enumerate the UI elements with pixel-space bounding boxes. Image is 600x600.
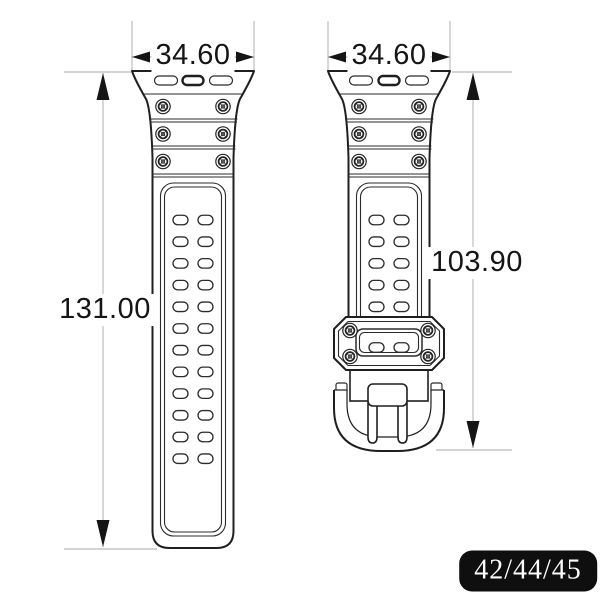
- buckle-prong-leg: [368, 403, 377, 443]
- right-lug-slots: [350, 76, 429, 85]
- arrow-left-icon: [328, 52, 346, 63]
- strap-hole: [394, 280, 409, 290]
- strap-hole: [173, 280, 188, 290]
- dim-width-left: 34.60: [151, 40, 234, 72]
- strap-hole: [173, 389, 188, 399]
- dim-length-right: 103.90: [427, 247, 527, 279]
- strap-hole: [173, 411, 188, 421]
- strap-hole: [394, 259, 409, 269]
- strap-hole: [394, 343, 409, 353]
- lug-slot: [210, 76, 233, 85]
- strap-hole: [198, 367, 213, 377]
- dimension-lines: [64, 21, 512, 549]
- lug-slot-center: [379, 76, 400, 85]
- keeper: [334, 317, 444, 370]
- strap-hole: [369, 343, 384, 353]
- screw-icon: [343, 323, 357, 337]
- strap-hole: [198, 411, 213, 421]
- size-badge: 42/44/45: [459, 551, 597, 592]
- strap-hole: [198, 432, 213, 442]
- technical-drawing-canvas: 34.60 34.60 131.00 103.90 42/44/45: [0, 0, 600, 600]
- buckle-prong-head: [368, 384, 407, 406]
- screw-icon: [352, 99, 366, 113]
- strap-hole: [173, 302, 188, 312]
- screw-icon: [412, 154, 426, 168]
- strap-hole: [173, 324, 188, 334]
- strap-hole: [173, 237, 188, 247]
- screw-icon: [352, 127, 366, 141]
- screw-icon: [156, 127, 170, 141]
- strap-hole: [369, 280, 384, 290]
- strap-hole: [198, 280, 213, 290]
- arrow-right-icon: [432, 52, 450, 63]
- arrow-down-icon: [97, 520, 110, 547]
- strap-hole: [198, 389, 213, 399]
- screw-icon: [343, 349, 357, 363]
- buckle-prong-leg: [398, 403, 407, 443]
- screw-icon: [421, 323, 435, 337]
- strap-hole: [198, 345, 213, 355]
- strap-hole: [394, 215, 409, 225]
- lug-slot: [406, 76, 429, 85]
- arrow-down-icon: [467, 421, 480, 448]
- strap-hole: [173, 454, 188, 464]
- lug-slot-center: [183, 76, 204, 85]
- arrow-up-icon: [97, 73, 110, 100]
- screw-icon: [412, 127, 426, 141]
- strap-hole: [394, 237, 409, 247]
- left-lug-slots: [155, 76, 233, 85]
- strap-hole: [369, 259, 384, 269]
- strap-hole: [173, 345, 188, 355]
- strap-hole: [369, 302, 384, 312]
- screw-icon: [216, 154, 230, 168]
- screw-icon: [412, 99, 426, 113]
- screw-icon: [156, 99, 170, 113]
- strap-hole: [173, 215, 188, 225]
- strap-hole: [394, 302, 409, 312]
- strap-hole: [369, 215, 384, 225]
- strap-hole: [198, 259, 213, 269]
- screw-icon: [216, 127, 230, 141]
- strap-hole: [198, 215, 213, 225]
- dim-width-right: 34.60: [347, 40, 430, 72]
- arrow-up-icon: [467, 73, 480, 100]
- screw-icon: [421, 349, 435, 363]
- arrow-right-icon: [236, 52, 254, 63]
- strap-hole: [198, 237, 213, 247]
- screw-icon: [156, 154, 170, 168]
- screw-icon: [352, 154, 366, 168]
- strap-hole: [369, 237, 384, 247]
- dim-length-left: 131.00: [55, 294, 155, 326]
- strap-hole: [198, 454, 213, 464]
- screw-icon: [216, 99, 230, 113]
- strap-hole: [173, 367, 188, 377]
- right-strap-outline: [328, 71, 450, 322]
- strap-hole: [173, 259, 188, 269]
- lug-slot: [155, 76, 178, 85]
- lug-slot: [350, 76, 373, 85]
- strap-hole: [173, 432, 188, 442]
- strap-hole: [198, 324, 213, 334]
- arrow-left-icon: [132, 52, 150, 63]
- strap-hole: [198, 302, 213, 312]
